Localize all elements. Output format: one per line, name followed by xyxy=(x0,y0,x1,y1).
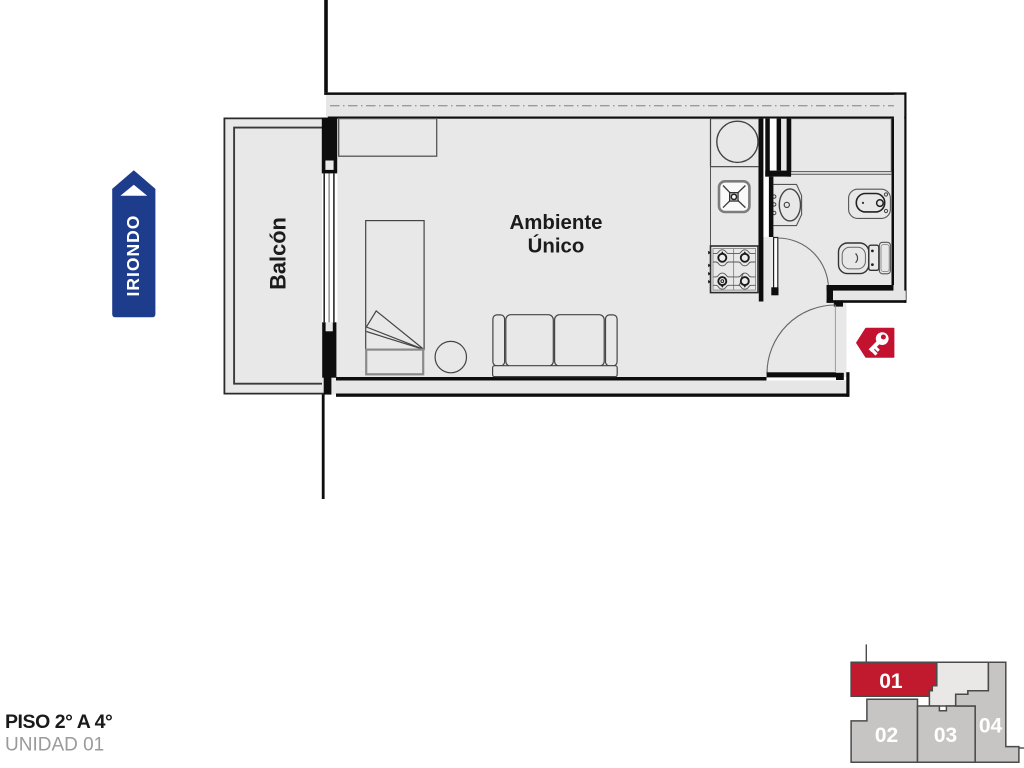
svg-text:Balcón: Balcón xyxy=(265,217,290,290)
svg-text:02: 02 xyxy=(875,724,898,747)
svg-text:Único: Único xyxy=(528,234,585,258)
svg-text:01: 01 xyxy=(879,670,903,693)
svg-text:04: 04 xyxy=(979,714,1003,737)
svg-text:03: 03 xyxy=(934,724,957,747)
svg-text:Ambiente: Ambiente xyxy=(510,212,603,234)
svg-text:PISO 2° A 4°: PISO 2° A 4° xyxy=(5,711,112,733)
svg-text:UNIDAD 01: UNIDAD 01 xyxy=(5,735,104,756)
svg-text:IRIONDO: IRIONDO xyxy=(123,215,143,297)
